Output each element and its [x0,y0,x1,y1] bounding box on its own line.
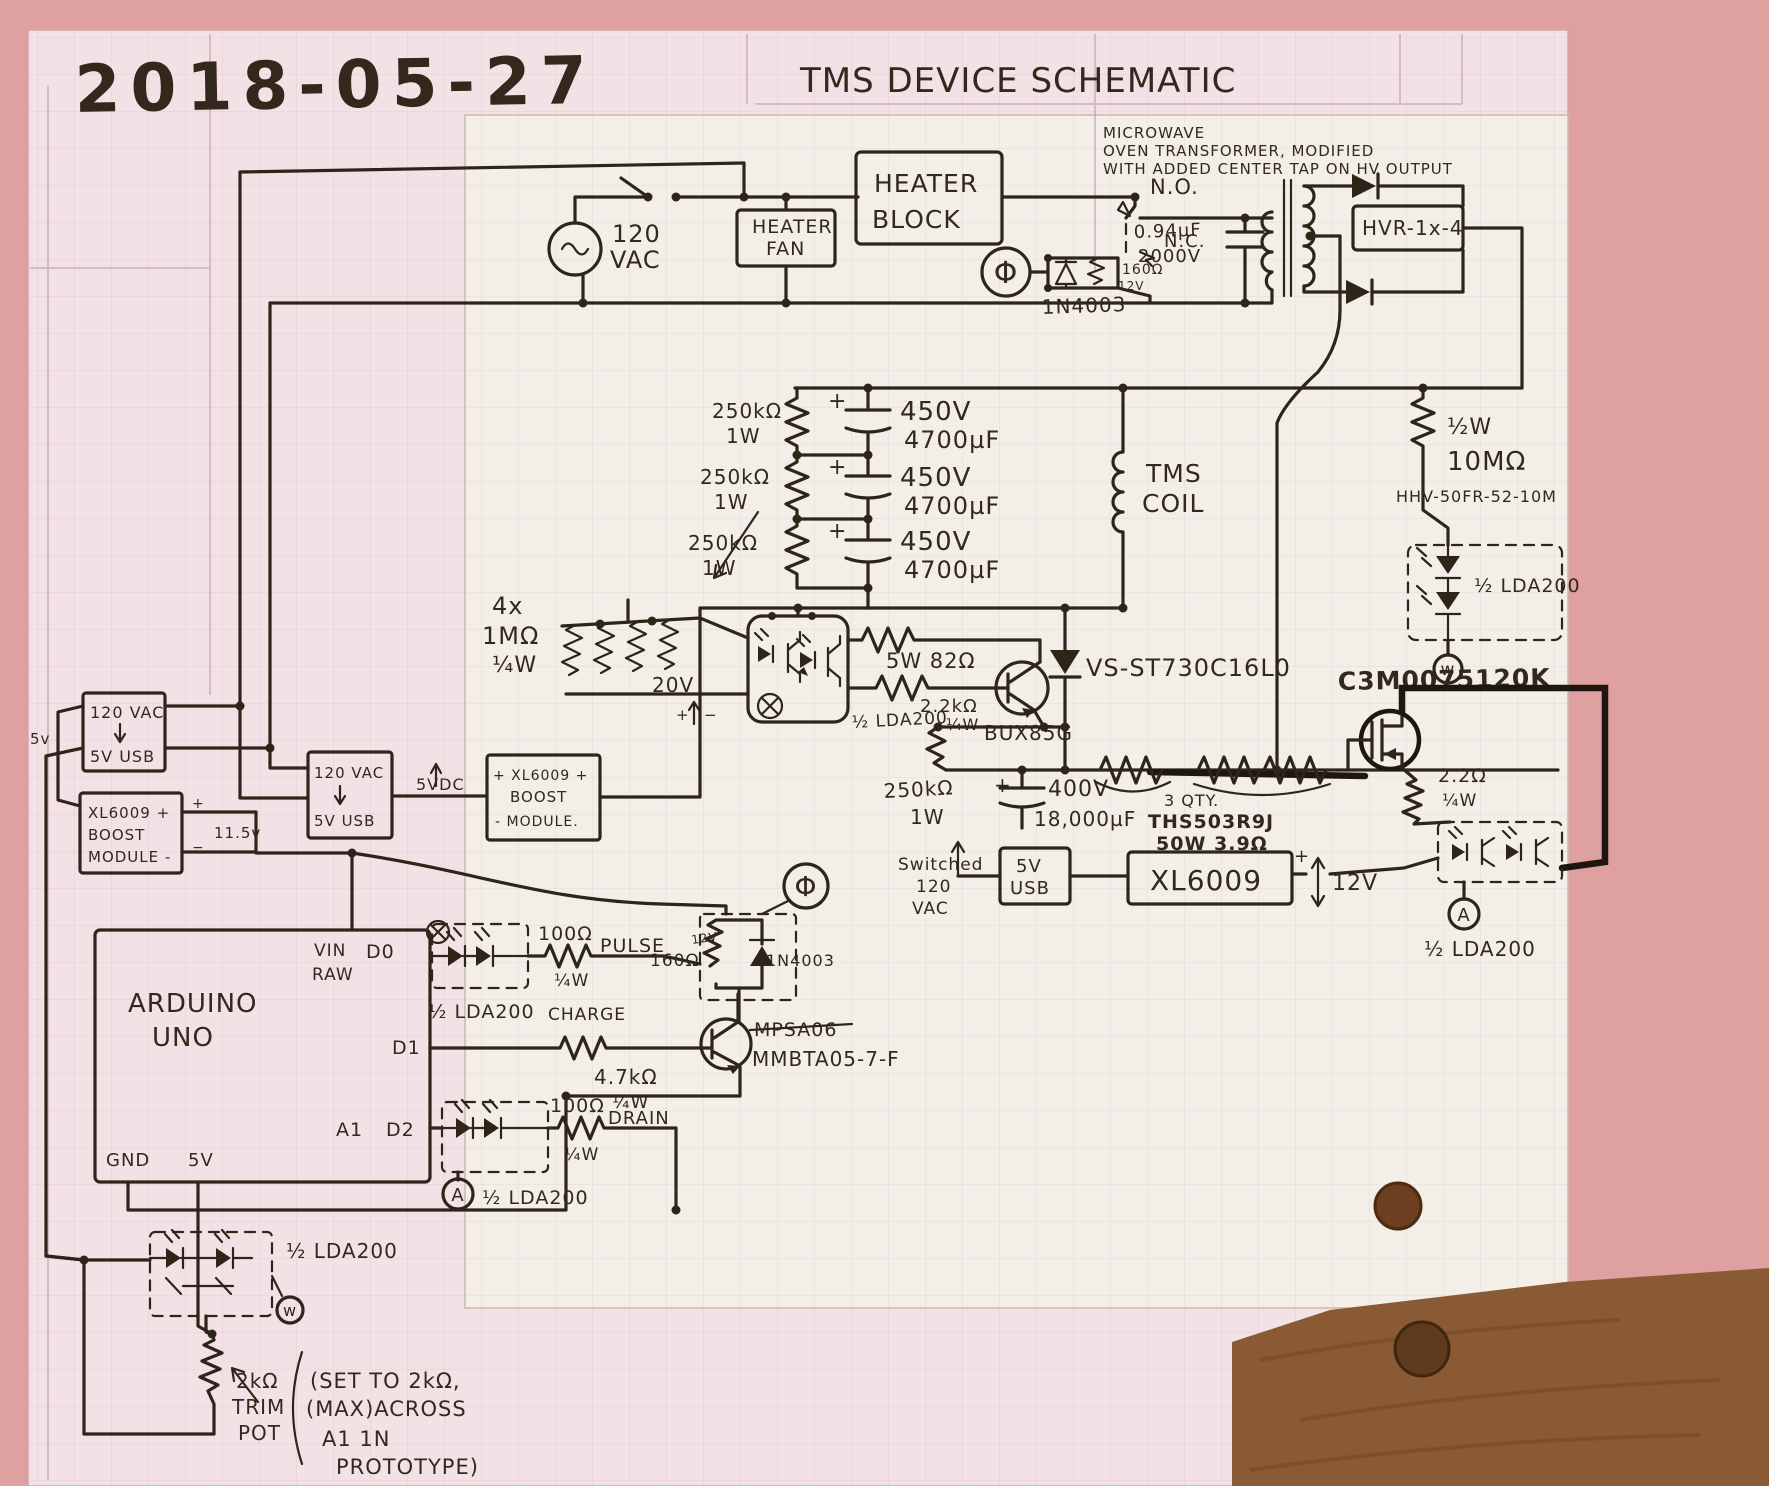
cap-400v-uf: 18,000µF [1034,807,1136,831]
cap2-uf: 4700µF [904,492,1000,520]
charge-label: CHARGE [548,1005,626,1025]
heater-block-label2: BLOCK [872,205,961,234]
v115-label: 11.5v [214,824,261,842]
res-100-pulse-label: 100Ω [538,923,593,945]
page-title: TMS DEVICE SCHEMATIC [799,61,1236,101]
cap3-uf: 4700µF [904,556,1000,584]
ac-usb-left-label1: 120 VAC [90,703,164,722]
xl6009-right-label: XL6009 [1150,864,1262,897]
res-250k-low-watt: 1W [910,805,945,829]
cap-400v-plus: + [994,773,1012,797]
arduino-label1: ARDUINO [128,989,257,1019]
bleed-r1-value: 250kΩ [712,399,782,423]
relay-no-label: N.O. [1150,175,1199,199]
left-5v-label: 5v [30,730,50,748]
cap1-plus: + [828,389,847,414]
cap2-voltage: 450V [900,463,971,493]
scr-label: VS-ST730C16L0 [1086,654,1291,682]
boost-left-label1: XL6009 + [88,804,170,822]
cap2-plus: + [828,455,847,480]
pin-gnd: GND [106,1150,150,1171]
res4x-qty: 4x [492,592,523,620]
bleed-r2-value: 250kΩ [700,465,770,489]
bleed-part: HHV-50FR-52-10M [1396,487,1557,506]
cap-400v-voltage: 400V [1048,777,1109,802]
ac-usb-left-label2: 5V USB [90,747,155,766]
relay-coil-v: 12V [1118,279,1144,293]
tms-label1: TMS [1145,459,1202,488]
transformer-note-line1: MICROWAVE [1103,124,1205,142]
pot-note2: (MAX)ACROSS [306,1397,467,1421]
punch-hole-top [1375,1183,1421,1229]
arduino-label2: UNO [152,1023,214,1053]
mmbta-label: MMBTA05-7-F [752,1047,900,1071]
bleed-r1-watt: 1W [726,424,761,448]
phi-marker-top: Φ [994,256,1019,291]
ths-qty: 3 QTY. [1164,791,1219,810]
pot-note3: A1 1N [322,1427,390,1451]
res-2r2-watt: ¼W [1442,791,1477,811]
lda-hv-label: ½ LDA200 [1474,575,1581,597]
pot-note4: PROTOTYPE) [336,1455,479,1479]
drain-label: DRAIN [608,1108,670,1129]
bleed-r2-watt: 1W [714,490,749,514]
boost20-minus: − [704,706,718,724]
ths-part: THS503R9J [1148,811,1274,833]
res4x-value: 1MΩ [482,622,539,650]
res-22k-watt: ¼W [946,715,979,734]
res-250k-low-label: 250kΩ [883,775,954,803]
pot-value: 2kΩ [236,1369,279,1393]
pot-label1: TRIM [231,1395,285,1419]
tms-label2: COIL [1142,489,1204,518]
pin-raw: RAW [312,965,354,985]
bleed-watt: ½W [1447,415,1492,440]
phi-marker-low: Φ [794,870,817,903]
boost-mid-label2: BOOST [510,788,567,806]
boost-mid-label3: - MODULE. [495,814,579,830]
mains-voltage: 120 [612,220,661,248]
w-marker-bottom: w [283,1301,297,1320]
pin-a1: A1 [336,1119,363,1141]
relay-low-diode-label: 1N4003 [766,951,835,970]
usb-5v-label2: USB [1010,878,1050,899]
cap1-voltage: 450V [900,397,971,427]
lda-pulse-label: ½ LDA200 [428,1001,535,1023]
usb-5v-label1: 5V [1016,856,1042,877]
snubber-cap-value: 0.94µF [1133,220,1202,243]
bux-label: BUX85G [984,721,1073,745]
boost-mid-label1: + XL6009 + [493,768,588,784]
heater-fan-label2: FAN [766,238,805,260]
pot-note1: (SET TO 2kΩ, [310,1369,461,1393]
relay-coil-r: 160Ω [1122,262,1163,278]
xl6009-right-plus: + [1294,846,1310,867]
flyback-diode-label: 1N4003 [1041,292,1126,319]
a-marker-right: A [1457,905,1470,926]
punch-hole-bottom [1395,1322,1449,1376]
photo-of-schematic: 2018-05-27 TMS DEVICE SCHEMATIC MICROWAV… [0,0,1769,1486]
bleed-value: 10MΩ [1447,447,1526,477]
heater-block-label1: HEATER [874,169,978,198]
boost-left-label3: MODULE - [88,848,171,866]
pot-label2: POT [238,1421,281,1445]
boost20-plus: + [676,706,690,724]
pin-d2: D2 [386,1119,415,1141]
rectifier-label: HVR-1x-4 [1362,216,1464,240]
res4x-watt: ¼W [492,653,537,678]
switched-label3: VAC [912,899,949,919]
cap3-plus: + [828,519,847,544]
transformer-note-line2: OVEN TRANSFORMER, MODIFIED [1103,142,1374,160]
lda-right-label: ½ LDA200 [1424,937,1536,961]
cap3-voltage: 450V [900,527,971,557]
pin-vin: VIN [314,941,346,961]
ac-usb-mid-label1: 120 VAC [314,764,384,782]
lda-drain-label: ½ LDA200 [482,1187,589,1209]
res-100-drain-label: 100Ω [550,1095,605,1117]
res-100-drain-watt: ¼W [564,1145,599,1165]
bleed-r3-value: 250kΩ [688,531,758,555]
pin-d0: D0 [366,941,395,963]
res-82-label: 5W 82Ω [886,649,976,673]
heater-fan-label1: HEATER [752,216,833,238]
res-4k7-label: 4.7kΩ [594,1065,658,1089]
date: 2018-05-27 [74,42,597,128]
a-marker-low: A [451,1185,464,1206]
res-2r2-label: 2.2Ω [1438,765,1487,787]
lda-bottom-label: ½ LDA200 [286,1239,398,1263]
res-22k-label: 2.2kΩ [920,696,978,717]
boost-left-label2: BOOST [88,826,145,844]
pin-d1: D1 [392,1037,421,1059]
cap1-uf: 4700µF [904,426,1000,454]
switched-label1: Switched [898,855,983,875]
res-100-pulse-watt: ¼W [554,971,589,991]
switched-label2: 120 [916,877,951,897]
boost-left-plus: + [192,796,205,812]
relay-low-r: 160Ω [650,951,699,971]
mains-unit: VAC [610,246,661,274]
ac-usb-mid-label2: 5V USB [314,812,375,830]
pin-5v: 5V [188,1150,214,1171]
vdc-label: 5VDC [416,775,465,794]
v12-label: 12V [1332,871,1378,896]
